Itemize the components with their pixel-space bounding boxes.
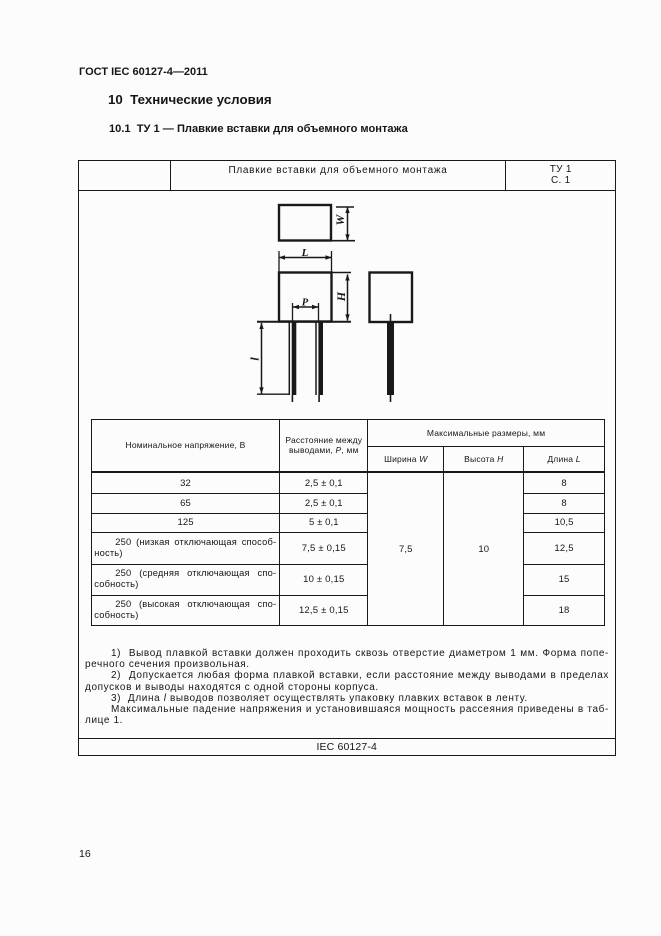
svg-text:W: W <box>333 213 347 225</box>
svg-text:L: L <box>300 246 308 258</box>
svg-text:Р: Р <box>301 297 308 308</box>
svg-text:l: l <box>247 356 261 360</box>
svg-text:H: H <box>333 291 347 302</box>
